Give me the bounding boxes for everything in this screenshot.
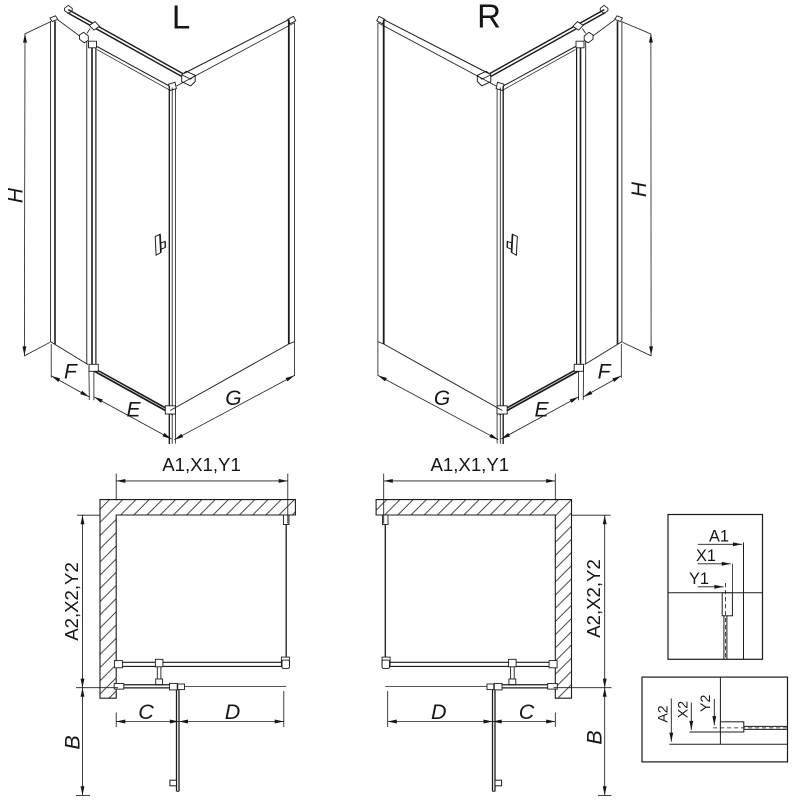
svg-text:B: B xyxy=(583,730,607,744)
svg-text:D: D xyxy=(225,700,241,724)
svg-text:A1,X1,Y1: A1,X1,Y1 xyxy=(431,454,510,475)
svg-text:G: G xyxy=(225,387,241,410)
svg-text:R: R xyxy=(477,0,501,35)
svg-text:C: C xyxy=(138,700,154,724)
svg-text:Y1: Y1 xyxy=(689,570,709,588)
svg-text:H: H xyxy=(628,181,651,197)
svg-text:D: D xyxy=(431,700,447,724)
svg-text:B: B xyxy=(61,735,85,749)
svg-text:C: C xyxy=(519,700,535,724)
svg-text:E: E xyxy=(126,399,141,422)
svg-text:F: F xyxy=(598,361,612,384)
svg-text:A1: A1 xyxy=(709,528,729,546)
svg-text:G: G xyxy=(434,387,450,410)
svg-text:F: F xyxy=(64,361,78,384)
svg-text:A2,X2,Y2: A2,X2,Y2 xyxy=(61,562,82,641)
svg-text:X1: X1 xyxy=(696,547,716,565)
svg-text:H: H xyxy=(5,187,28,203)
svg-text:Y2: Y2 xyxy=(698,695,714,712)
svg-text:X2: X2 xyxy=(676,701,692,718)
svg-text:E: E xyxy=(534,399,549,422)
svg-text:A2,X2,Y2: A2,X2,Y2 xyxy=(583,559,604,638)
svg-text:A1,X1,Y1: A1,X1,Y1 xyxy=(162,454,241,475)
svg-text:L: L xyxy=(172,0,190,36)
svg-text:A2: A2 xyxy=(655,705,671,722)
